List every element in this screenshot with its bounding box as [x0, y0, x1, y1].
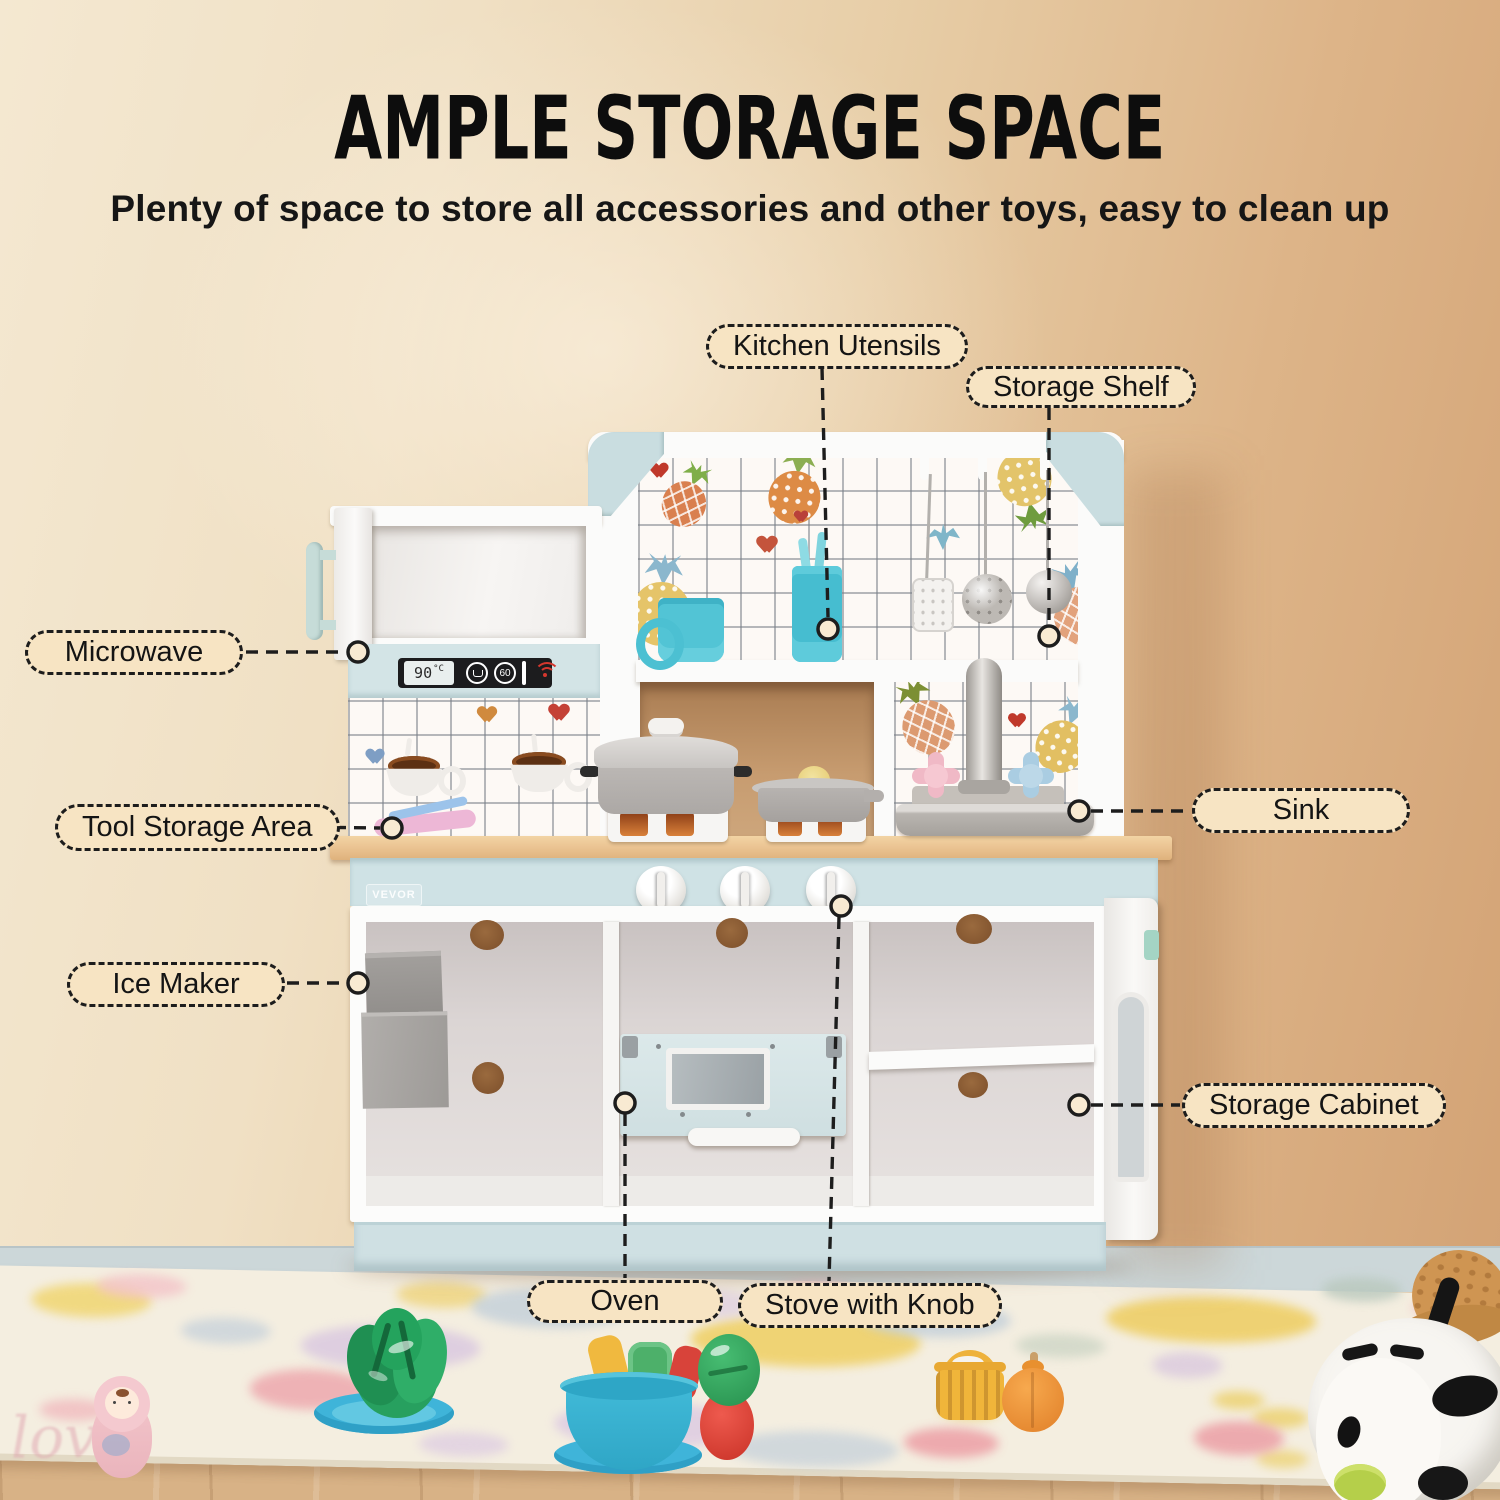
pan-body [758, 788, 870, 822]
burner-flame [620, 812, 648, 836]
page-subtitle: Plenty of space to store all accessories… [0, 188, 1500, 230]
heart-decal [794, 510, 807, 522]
cabinet-divider [603, 922, 619, 1206]
callout-ice-maker: Ice Maker [67, 962, 285, 1007]
oven-window [666, 1048, 770, 1110]
door-handle[interactable] [1144, 930, 1159, 960]
cutout-hole [472, 1062, 504, 1094]
plush-dog-toy [1170, 1240, 1500, 1500]
toy-tomato [698, 1334, 760, 1464]
pot-lid [594, 736, 738, 768]
heart-decal [1009, 713, 1026, 728]
cutout-hole [716, 918, 748, 948]
door-handle-arm [320, 550, 336, 560]
brand-plate: VEVOR [366, 884, 422, 906]
microwave-cavity [372, 526, 586, 638]
ladle-handle [1046, 470, 1049, 574]
door-porthole-window [1113, 992, 1149, 1182]
coffee-cup-decal [506, 746, 578, 804]
pot-lid-knob [648, 718, 684, 734]
pot-handle [732, 766, 752, 777]
pineapple-decal [894, 682, 964, 763]
cutout-hole [958, 1072, 988, 1098]
ladle [1026, 570, 1072, 614]
heart-decal [478, 706, 497, 723]
oven-door[interactable] [620, 1034, 846, 1136]
nesting-doll-toy [90, 1376, 154, 1478]
callout-sink: Sink [1192, 788, 1410, 833]
ice-maker-box [361, 1011, 449, 1108]
heart-decal [757, 535, 777, 553]
ice-maker-box [365, 951, 443, 1018]
timer-60-icon[interactable]: 60 [494, 662, 516, 684]
faucet-base [958, 780, 1010, 794]
bowl-rim [560, 1372, 698, 1400]
wifi-signal-icon[interactable] [532, 662, 558, 684]
plush-spot [1418, 1466, 1468, 1500]
coffee-cup-decal [382, 750, 452, 808]
sprout-decal [926, 524, 960, 550]
cutout-hole [470, 920, 504, 950]
oven-screw [656, 1044, 661, 1049]
callout-storage-shelf: Storage Shelf [966, 366, 1196, 408]
skimmer [962, 574, 1012, 624]
base-plinth [354, 1222, 1106, 1271]
sink-basin [896, 804, 1094, 836]
heart-decal [549, 703, 569, 721]
callout-tool-storage-area: Tool Storage Area [55, 804, 340, 851]
temperature-unit: °C [433, 664, 444, 674]
sink-knob-pink-center [924, 764, 948, 788]
pot-body [598, 760, 734, 814]
scene: love [0, 0, 1500, 1500]
brand-label: VEVOR [372, 889, 416, 901]
oven-door-handle[interactable] [688, 1128, 800, 1146]
toy-cabbage [348, 1308, 448, 1420]
pineapple-decal [992, 458, 1061, 535]
door-handle-arm [320, 620, 336, 630]
hutch-mid-divider [874, 660, 894, 838]
cabinet-divider [853, 922, 869, 1206]
blue-cup-handle [636, 618, 684, 670]
storage-shelf-board [636, 660, 1078, 682]
callout-storage-cabinet: Storage Cabinet [1182, 1083, 1446, 1128]
panel-divider-bar [522, 661, 526, 685]
skimmer-handle [984, 472, 987, 578]
blue-tumbler-cup [792, 566, 842, 662]
oven-screw [680, 1112, 685, 1117]
toy-lime-coin [1334, 1464, 1386, 1500]
oven-screw [746, 1112, 751, 1117]
cutout-hole [956, 914, 992, 944]
storage-cabinet-door[interactable] [1104, 898, 1158, 1240]
callout-microwave: Microwave [25, 630, 243, 675]
callout-oven: Oven [527, 1280, 723, 1323]
pot-handle [580, 766, 600, 777]
pan-spout [864, 790, 884, 802]
callout-kitchen-utensils: Kitchen Utensils [706, 324, 968, 369]
toy-orange [1002, 1352, 1064, 1434]
callout-stove-with-knob: Stove with Knob [738, 1283, 1002, 1328]
oven-screw [770, 1044, 775, 1049]
microwave-door-open [334, 508, 372, 660]
sink-knob-blue-center [1019, 764, 1043, 788]
page-title: AMPLE STORAGE SPACE [0, 86, 1500, 172]
utensil-hook [920, 452, 929, 480]
burner-flame [666, 812, 694, 836]
cabinet-floor [366, 1176, 1094, 1206]
tool-storage-counter [330, 836, 1172, 860]
spatula [912, 578, 954, 632]
oven-hinge [622, 1036, 638, 1058]
faucet [966, 658, 1002, 790]
temperature-display: 90°C [404, 661, 454, 685]
toy-basket [934, 1350, 1006, 1420]
steam-cup-icon[interactable] [466, 662, 488, 684]
temperature-value: 90 [414, 664, 432, 682]
oven-hinge [826, 1036, 842, 1058]
